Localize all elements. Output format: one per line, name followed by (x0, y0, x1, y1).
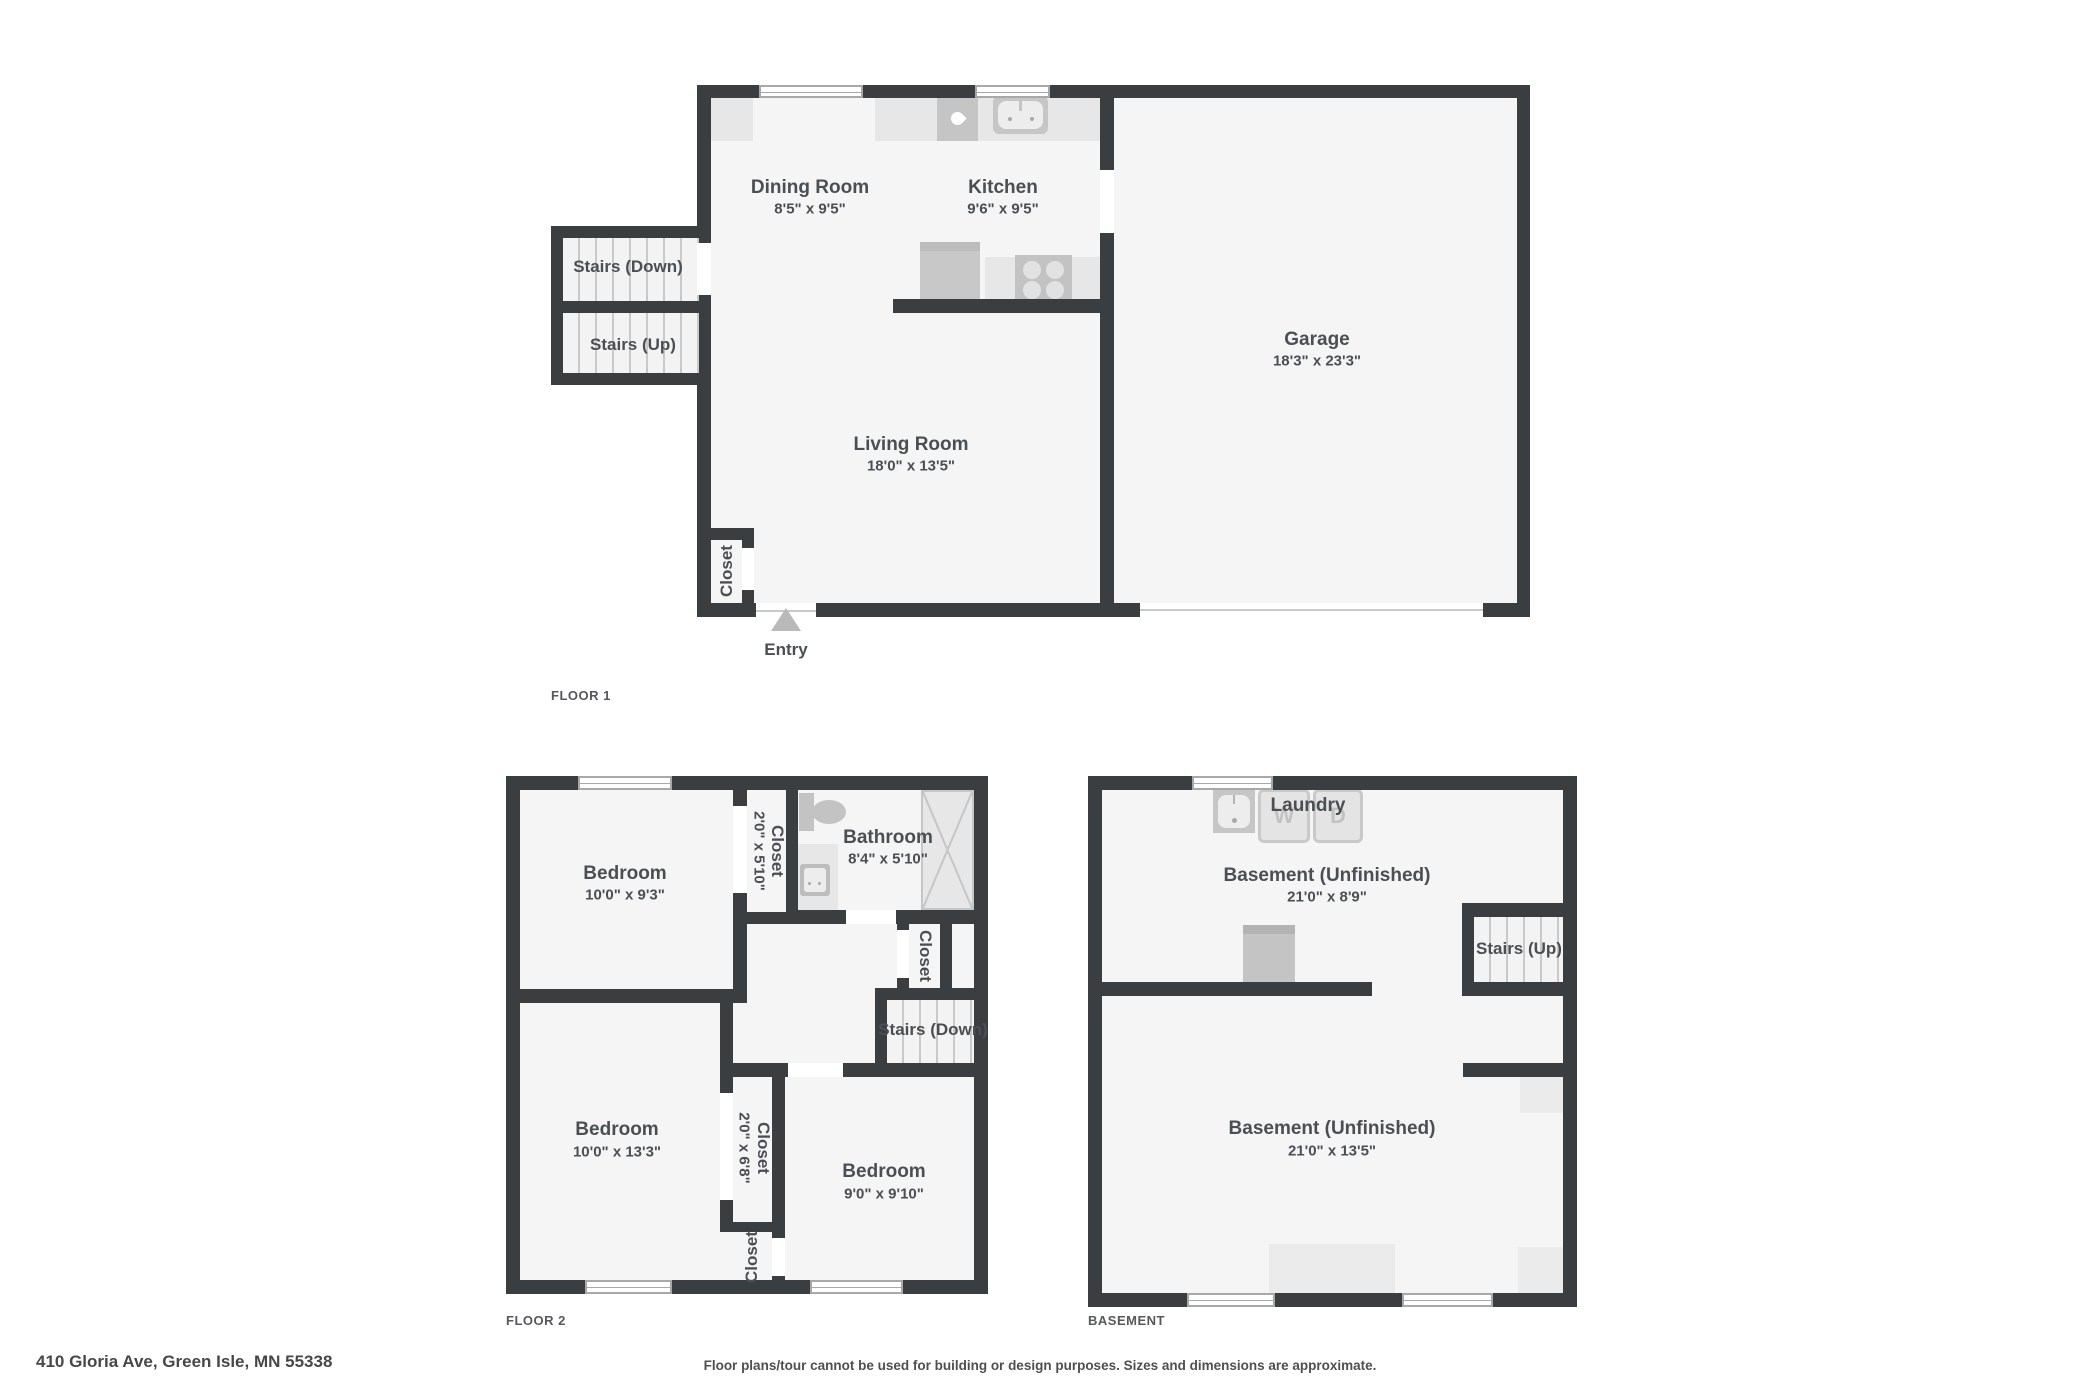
bedroom3-label: Bedroom (842, 1161, 925, 1183)
basement-top-wall (1088, 776, 1577, 790)
bedroom2-window (585, 1280, 672, 1294)
refrigerator (920, 242, 980, 302)
garage-top-wall (1100, 85, 1530, 98)
bedroom1-label: Bedroom (583, 863, 666, 885)
bedroom1-window (578, 776, 672, 790)
closet3-door (720, 1093, 733, 1200)
closet2-label: Closet (915, 930, 935, 982)
dining-window (759, 85, 863, 98)
basement-pad-right-upper (1520, 1077, 1563, 1113)
basement-pad-bottom-right (1518, 1247, 1563, 1293)
bathroom-shower (921, 790, 974, 910)
basement-bottom-window-left (1187, 1293, 1275, 1307)
basement-tag: BASEMENT (1088, 1313, 1165, 1328)
kitchen-sink-divider (1019, 101, 1022, 111)
entry-arrow-icon (771, 608, 801, 631)
floor2-stairs-top-wall (875, 988, 988, 1000)
basement-bottom-window-right (1402, 1293, 1493, 1307)
laundry-label: Laundry (1271, 795, 1346, 817)
kitchen-window (975, 85, 1050, 98)
garage-dims: 18'3" x 23'3" (1273, 353, 1361, 370)
toilet-bowl (812, 800, 846, 824)
stove (1015, 255, 1072, 303)
basement-stairs-bottom-wall (1462, 982, 1577, 996)
shower-x-icon (923, 792, 972, 908)
floorplan-page: Stairs (Down) Stairs (Up) Closet Entry D… (0, 0, 2080, 1386)
bedroom1-bottom-wall (506, 989, 747, 1003)
closet3-right-wall (772, 1077, 785, 1222)
floor1-closet-door (742, 548, 754, 590)
stove-burner-1 (1023, 261, 1041, 279)
garage-right-wall (1517, 85, 1530, 617)
kitchen-sink-drain-left (1008, 117, 1012, 121)
floor1-closet-label: Closet (717, 545, 737, 597)
bedroom2-dims: 10'0" x 13'3" (573, 1144, 661, 1161)
basement-lower-label: Basement (Unfinished) (1229, 1118, 1436, 1140)
bathroom-dims: 8'4" x 5'10" (848, 851, 928, 868)
laundry-sink-drain (1232, 818, 1237, 823)
floor2-tag: FLOOR 2 (506, 1313, 566, 1328)
basement-divider-wall (1088, 982, 1372, 996)
dining-room-label: Dining Room (751, 177, 869, 199)
bedroom2-label: Bedroom (575, 1119, 658, 1141)
living-room-dims: 18'0" x 13'5" (867, 458, 955, 475)
closet1-door (733, 806, 747, 893)
floor1-closet-top-wall (697, 528, 754, 540)
laundry-sink-tick (1233, 795, 1235, 804)
basement-right-stub-wall (1463, 1063, 1577, 1077)
garage-door-opening (1100, 170, 1114, 233)
floor1-tag: FLOOR 1 (551, 688, 611, 703)
closet1-right-wall (786, 790, 798, 912)
stove-burner-4 (1046, 281, 1064, 299)
floor2-mid-band-wall (720, 1063, 988, 1077)
closet4-label: Closet (742, 1231, 762, 1283)
kitchen-counter-top (875, 98, 1100, 141)
basement-bottom-wall (1088, 1293, 1577, 1307)
floor2-stairs-down-label: Stairs (Down) (873, 1019, 993, 1041)
stairwing-top-wall (551, 226, 711, 238)
stairwing-mid-wall (551, 301, 711, 313)
bedroom1-dims: 10'0" x 9'3" (585, 887, 665, 904)
kitchen-garage-wall (1100, 85, 1114, 617)
floor1-stairs-up-label: Stairs (Up) (590, 335, 676, 355)
floor2-left-wall (506, 776, 520, 1294)
basement-upper-dims: 21'0" x 8'9" (1287, 889, 1367, 906)
bathroom-door (846, 910, 896, 924)
basement-top-window (1192, 776, 1273, 790)
floor1-main-interior (711, 98, 1100, 603)
bathroom-sink-dot-left (808, 882, 811, 885)
closet4-door (772, 1238, 785, 1276)
closet1-label: Closet (767, 825, 787, 877)
bathroom-label: Bathroom (843, 827, 933, 849)
garage-label: Garage (1284, 329, 1349, 351)
closet3-label: Closet (753, 1122, 773, 1174)
closet2-right-wall (940, 924, 952, 988)
property-address: 410 Gloria Ave, Green Isle, MN 55338 (36, 1352, 332, 1372)
basement-upper-label: Basement (Unfinished) (1224, 865, 1431, 887)
stairs-doorway (697, 243, 711, 295)
kitchen-living-wall (893, 299, 1110, 313)
bathroom-sink-dot-right (818, 882, 821, 885)
refrigerator-top-strip (920, 242, 980, 251)
bathroom-sink-basin (804, 868, 826, 892)
closet1-dims: 2'0" x 5'10" (751, 811, 768, 891)
stove-burner-3 (1023, 281, 1041, 299)
entry-label: Entry (764, 640, 807, 660)
basement-stairs-top-wall (1462, 903, 1577, 917)
living-room-label: Living Room (853, 434, 968, 456)
kitchen-dims: 9'6" x 9'5" (967, 201, 1038, 218)
closet3-dims: 2'0" x 6'8" (736, 1112, 753, 1183)
basement-left-wall (1088, 776, 1102, 1307)
basement-lower-dims: 21'0" x 13'5" (1288, 1143, 1376, 1160)
basement-stairs-up-label: Stairs (Up) (1476, 939, 1562, 959)
garage-vehicle-door-line (1140, 609, 1483, 611)
bedroom3-dims: 9'0" x 9'10" (844, 1186, 924, 1203)
dining-room-dims: 8'5" x 9'5" (774, 201, 845, 218)
basement-stairs-left-wall (1462, 917, 1474, 982)
floor1-stairs-down-label: Stairs (Down) (573, 257, 683, 277)
disclaimer-text: Floor plans/tour cannot be used for buil… (704, 1358, 1377, 1373)
bedroom3-door (788, 1063, 843, 1077)
water-heater-top-band (1243, 925, 1295, 934)
stairwing-bottom-wall (551, 373, 711, 385)
closet2-door (897, 930, 909, 978)
kitchen-label: Kitchen (968, 177, 1038, 199)
water-heater (1243, 925, 1295, 990)
bedroom3-window (810, 1280, 903, 1294)
closet1-bottom-wall (733, 912, 798, 924)
kitchen-sink-drain-right (1030, 117, 1034, 121)
stove-burner-2 (1046, 261, 1064, 279)
basement-pad-bottom-center (1269, 1244, 1395, 1293)
basement-right-wall (1563, 776, 1577, 1307)
